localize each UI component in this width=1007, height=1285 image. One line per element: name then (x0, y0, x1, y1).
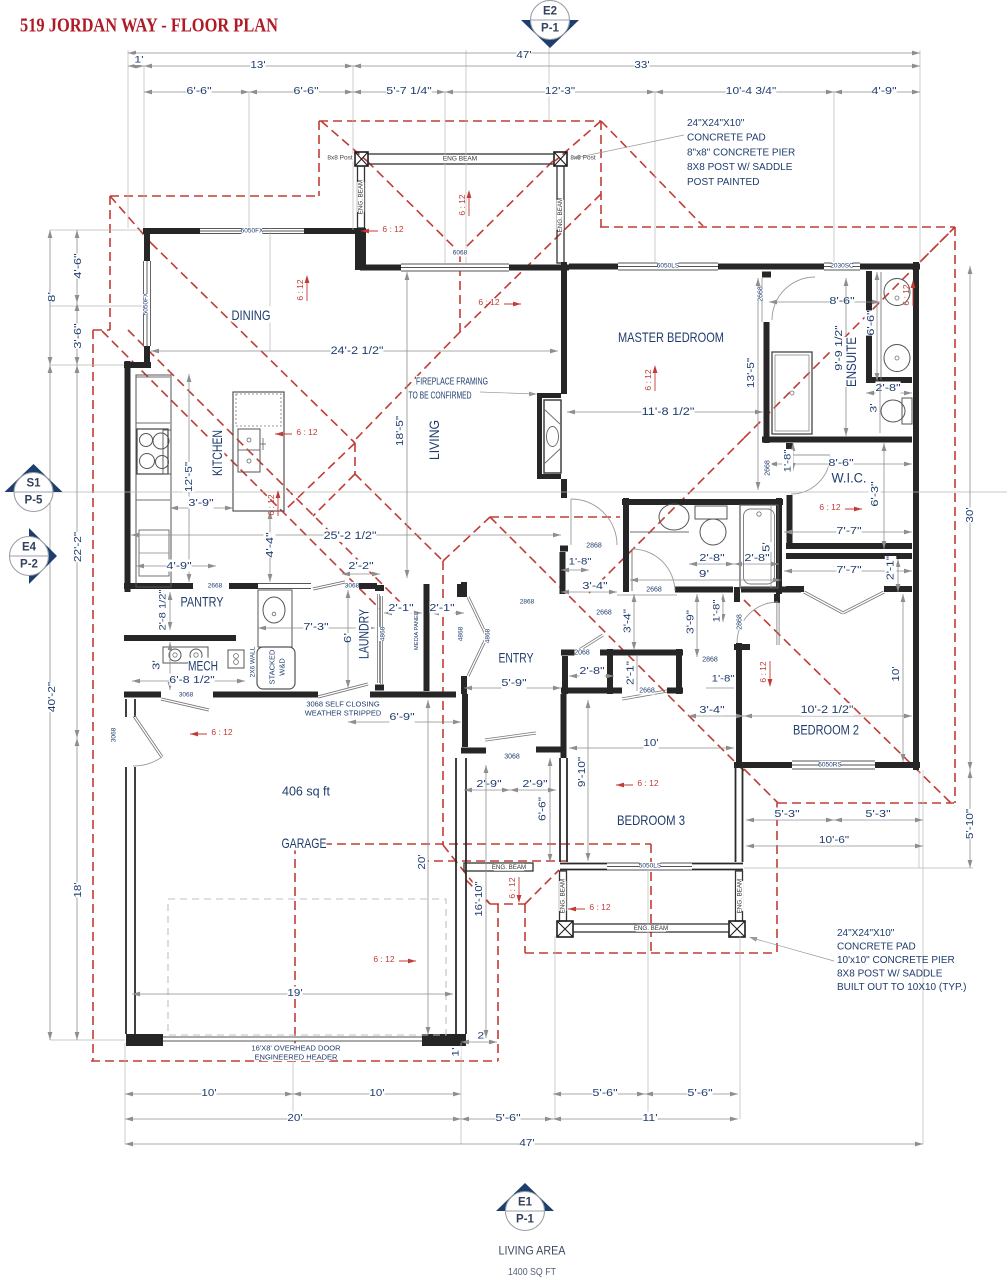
svg-text:2'-1": 2'-1" (429, 602, 455, 614)
svg-text:9'-10": 9'-10" (576, 757, 588, 788)
svg-text:ENG BEAM: ENG BEAM (443, 156, 477, 163)
svg-text:19': 19' (287, 987, 302, 999)
svg-text:2868: 2868 (737, 614, 744, 630)
svg-text:6 : 12: 6 : 12 (643, 369, 653, 391)
svg-text:P-1: P-1 (541, 23, 560, 35)
svg-text:W.I.C.: W.I.C. (832, 471, 867, 486)
svg-text:519 JORDAN WAY - FLOOR PLAN: 519 JORDAN WAY - FLOOR PLAN (20, 15, 278, 37)
svg-text:BUILT OUT TO 10X10 (TYP.): BUILT OUT TO 10X10 (TYP.) (837, 982, 967, 993)
svg-text:24"X24"X10": 24"X24"X10" (837, 928, 895, 939)
svg-text:5'-3": 5'-3" (774, 808, 800, 820)
svg-text:3': 3' (152, 660, 163, 670)
svg-text:33': 33' (634, 59, 649, 71)
svg-text:2068: 2068 (574, 650, 590, 657)
svg-text:3068: 3068 (111, 727, 118, 742)
svg-text:BEDROOM 2: BEDROOM 2 (793, 723, 859, 738)
svg-text:2668: 2668 (765, 460, 772, 476)
svg-text:24'-2 1/2": 24'-2 1/2" (331, 345, 384, 357)
svg-text:ENTRY: ENTRY (499, 651, 534, 666)
svg-text:6 : 12: 6 : 12 (373, 954, 395, 964)
svg-text:2668: 2668 (639, 688, 655, 695)
svg-text:LIVING AREA: LIVING AREA (499, 1246, 566, 1258)
svg-text:4868: 4868 (485, 628, 492, 643)
svg-text:2030SC: 2030SC (830, 263, 854, 270)
svg-text:3068: 3068 (179, 692, 194, 699)
svg-text:6050LS: 6050LS (657, 263, 680, 270)
svg-text:20': 20' (416, 854, 428, 869)
svg-text:LAUNDRY: LAUNDRY (357, 609, 372, 659)
svg-text:5'-6": 5'-6" (592, 1087, 618, 1099)
svg-text:10'x10" CONCRETE PIER: 10'x10" CONCRETE PIER (837, 955, 955, 966)
svg-text:4868: 4868 (458, 626, 465, 641)
svg-text:ENG. BEAM: ENG. BEAM (358, 180, 365, 214)
svg-text:2'-1": 2'-1" (626, 660, 637, 685)
svg-text:3068: 3068 (504, 754, 520, 761)
svg-text:W&D: W&D (278, 658, 287, 676)
svg-text:8'-6": 8'-6" (828, 457, 854, 469)
svg-text:1': 1' (451, 1047, 462, 1056)
svg-text:ENG. BEAM: ENG. BEAM (560, 879, 567, 913)
svg-text:6 : 12: 6 : 12 (457, 194, 467, 216)
svg-text:ENG. BEAM: ENG. BEAM (557, 198, 564, 232)
svg-text:6 : 12: 6 : 12 (211, 727, 233, 737)
svg-text:FIREPLACE FRAMING: FIREPLACE FRAMING (416, 377, 488, 388)
svg-text:13': 13' (250, 59, 265, 71)
svg-text:18': 18' (72, 882, 84, 897)
svg-text:1': 1' (134, 55, 143, 66)
svg-text:2'-8": 2'-8" (744, 552, 770, 564)
svg-text:BEDROOM 3: BEDROOM 3 (617, 812, 685, 828)
svg-text:6050FX: 6050FX (241, 228, 264, 235)
svg-text:5'-3": 5'-3" (865, 808, 891, 820)
svg-text:5': 5' (762, 542, 773, 552)
svg-text:P-2: P-2 (20, 559, 38, 571)
svg-text:CONCRETE PAD: CONCRETE PAD (837, 942, 916, 953)
svg-text:2'-2": 2'-2" (348, 560, 374, 572)
svg-text:406 sq ft: 406 sq ft (282, 784, 330, 799)
svg-text:16'X8' OVERHEAD DOOR: 16'X8' OVERHEAD DOOR (251, 1044, 341, 1053)
svg-text:10'-4 3/4": 10'-4 3/4" (726, 85, 777, 97)
svg-text:18'-5": 18'-5" (394, 416, 406, 447)
svg-text:4'-9": 4'-9" (871, 85, 897, 97)
svg-text:6'-6": 6'-6" (865, 310, 877, 336)
svg-text:8X8 POST W/ SADDLE: 8X8 POST W/ SADDLE (837, 969, 943, 980)
svg-text:10': 10' (890, 666, 902, 681)
svg-text:11': 11' (642, 1112, 657, 1124)
svg-text:3'-6": 3'-6" (72, 323, 84, 349)
svg-text:8'-6": 8'-6" (829, 295, 855, 307)
svg-text:WEATHER STRIPPED: WEATHER STRIPPED (305, 709, 382, 718)
svg-text:11'-8 1/2": 11'-8 1/2" (642, 406, 695, 418)
svg-text:30': 30' (964, 507, 976, 522)
svg-text:2868: 2868 (586, 543, 602, 550)
svg-text:ENG. BEAM: ENG. BEAM (492, 864, 526, 871)
svg-text:8"x8" CONCRETE PIER: 8"x8" CONCRETE PIER (687, 147, 795, 158)
svg-text:POST PAINTED: POST PAINTED (687, 177, 759, 188)
svg-text:ENGINEERED HEADER: ENGINEERED HEADER (255, 1053, 339, 1062)
svg-text:7'-7": 7'-7" (836, 564, 862, 576)
svg-text:6'-6": 6'-6" (293, 85, 319, 97)
svg-text:6'-3": 6'-3" (869, 481, 881, 507)
svg-text:2'-9": 2'-9" (476, 778, 502, 790)
svg-text:3': 3' (869, 403, 880, 412)
svg-text:ENSUITE: ENSUITE (843, 337, 859, 387)
svg-text:3'-9": 3'-9" (686, 609, 697, 634)
svg-text:9': 9' (699, 568, 709, 580)
svg-text:8x8 Post: 8x8 Post (327, 155, 352, 162)
svg-text:6 : 12: 6 : 12 (295, 279, 305, 301)
svg-text:2'-8": 2'-8" (579, 665, 605, 677)
svg-text:10': 10' (369, 1087, 384, 1099)
svg-text:13'-5": 13'-5" (745, 358, 757, 389)
svg-text:12'-5": 12'-5" (183, 462, 195, 493)
svg-text:STACKED: STACKED (268, 649, 277, 684)
svg-text:2'-1": 2'-1" (388, 602, 414, 614)
svg-text:MECH: MECH (188, 659, 218, 674)
svg-text:6 : 12: 6 : 12 (637, 778, 659, 788)
svg-text:2X6 WALL: 2X6 WALL (250, 646, 257, 677)
svg-text:ENG. BEAM: ENG. BEAM (737, 879, 744, 913)
svg-text:6 : 12: 6 : 12 (266, 494, 276, 516)
svg-text:MEDIA PANEL: MEDIA PANEL (414, 611, 420, 650)
svg-text:GARAGE: GARAGE (282, 835, 327, 851)
svg-text:DINING: DINING (232, 307, 271, 323)
svg-text:3'-4": 3'-4" (699, 704, 725, 716)
svg-text:12'-3": 12'-3" (545, 85, 576, 97)
svg-text:ENG. BEAM: ENG. BEAM (634, 925, 668, 932)
svg-text:6 : 12: 6 : 12 (296, 427, 318, 437)
svg-text:8X8 POST W/ SADDLE: 8X8 POST W/ SADDLE (687, 162, 793, 173)
svg-text:47': 47' (516, 49, 531, 61)
svg-text:5050RS: 5050RS (818, 762, 842, 769)
svg-text:6 : 12: 6 : 12 (758, 661, 768, 683)
svg-text:5'-7 1/4": 5'-7 1/4" (386, 85, 432, 97)
svg-text:3'-9": 3'-9" (188, 497, 214, 509)
svg-text:2668: 2668 (758, 286, 765, 302)
svg-text:10': 10' (643, 737, 658, 749)
svg-text:5050LS: 5050LS (639, 863, 662, 870)
svg-text:7'-3": 7'-3" (303, 621, 329, 633)
svg-text:E4: E4 (22, 542, 37, 554)
svg-text:PANTRY: PANTRY (181, 595, 224, 610)
svg-text:S1: S1 (26, 478, 41, 490)
svg-text:2'-1": 2'-1" (886, 555, 897, 580)
svg-text:KITCHEN: KITCHEN (209, 430, 225, 476)
svg-text:6 : 12: 6 : 12 (478, 297, 500, 307)
svg-text:6 : 12: 6 : 12 (507, 877, 517, 899)
svg-text:3'-4": 3'-4" (582, 580, 608, 592)
svg-text:7'-7": 7'-7" (836, 525, 862, 537)
svg-text:6'-6": 6'-6" (538, 796, 549, 821)
svg-text:2668: 2668 (208, 583, 223, 590)
svg-text:6 : 12: 6 : 12 (589, 902, 611, 912)
svg-text:3068 SELF CLOSING: 3068 SELF CLOSING (306, 700, 380, 709)
svg-text:6'-8 1/2": 6'-8 1/2" (169, 674, 215, 686)
svg-text:2'-8": 2'-8" (699, 552, 725, 564)
svg-text:MASTER BEDROOM: MASTER BEDROOM (618, 329, 724, 345)
svg-text:2'-8 1/2": 2'-8 1/2" (158, 590, 169, 631)
svg-text:10'-6": 10'-6" (819, 834, 850, 846)
svg-text:40'-2": 40'-2" (46, 682, 58, 713)
svg-text:4'-6": 4'-6" (72, 253, 84, 279)
svg-text:4868: 4868 (380, 626, 387, 641)
svg-text:4'-4": 4'-4" (264, 532, 276, 558)
svg-text:2'-9": 2'-9" (522, 778, 548, 790)
svg-text:20': 20' (287, 1112, 302, 1124)
svg-text:LIVING: LIVING (426, 420, 442, 460)
svg-text:6 : 12: 6 : 12 (382, 224, 404, 234)
svg-text:CONCRETE PAD: CONCRETE PAD (687, 133, 766, 144)
svg-text:24"X24"X10": 24"X24"X10" (687, 118, 745, 129)
svg-text:6': 6' (342, 633, 354, 643)
svg-text:2'-8": 2'-8" (875, 382, 901, 394)
svg-text:P-5: P-5 (25, 495, 44, 507)
svg-text:3068: 3068 (345, 583, 360, 590)
svg-text:2868: 2868 (520, 599, 535, 606)
svg-text:6'-9": 6'-9" (389, 711, 415, 723)
svg-text:1'-8": 1'-8" (712, 600, 723, 623)
svg-text:1'-8": 1'-8" (569, 557, 592, 568)
svg-text:8': 8' (46, 292, 58, 302)
svg-text:5'-9": 5'-9" (501, 677, 527, 689)
svg-text:5'-6": 5'-6" (687, 1087, 713, 1099)
svg-text:25'-2 1/2": 25'-2 1/2" (324, 530, 377, 542)
svg-text:47': 47' (519, 1137, 534, 1149)
svg-text:2668: 2668 (596, 610, 612, 617)
svg-text:6'-6": 6'-6" (186, 85, 212, 97)
svg-text:3'-4": 3'-4" (623, 608, 634, 633)
svg-text:5050FX: 5050FX (143, 292, 150, 315)
svg-text:10': 10' (201, 1087, 216, 1099)
svg-text:TO BE CONFIRMED: TO BE CONFIRMED (409, 391, 472, 402)
svg-text:6 : 12: 6 : 12 (901, 284, 911, 306)
svg-text:1'-8": 1'-8" (712, 674, 735, 685)
svg-text:6068: 6068 (453, 250, 468, 257)
svg-text:4'-9": 4'-9" (166, 560, 192, 572)
svg-text:22'-2": 22'-2" (72, 532, 84, 563)
svg-text:E1: E1 (518, 1197, 533, 1209)
svg-text:2668: 2668 (646, 587, 662, 594)
svg-text:2868: 2868 (702, 657, 718, 664)
svg-text:1400 SQ FT: 1400 SQ FT (508, 1266, 556, 1278)
svg-text:5'-6": 5'-6" (495, 1112, 521, 1124)
svg-text:E2: E2 (543, 6, 557, 18)
svg-text:P-1: P-1 (516, 1214, 535, 1226)
svg-text:1'-8": 1'-8" (783, 450, 794, 473)
svg-text:6 : 12: 6 : 12 (819, 502, 841, 512)
svg-text:5'-10": 5'-10" (964, 809, 976, 840)
svg-text:10'-2 1/2": 10'-2 1/2" (801, 704, 854, 716)
svg-text:16'-10": 16'-10" (473, 881, 485, 917)
